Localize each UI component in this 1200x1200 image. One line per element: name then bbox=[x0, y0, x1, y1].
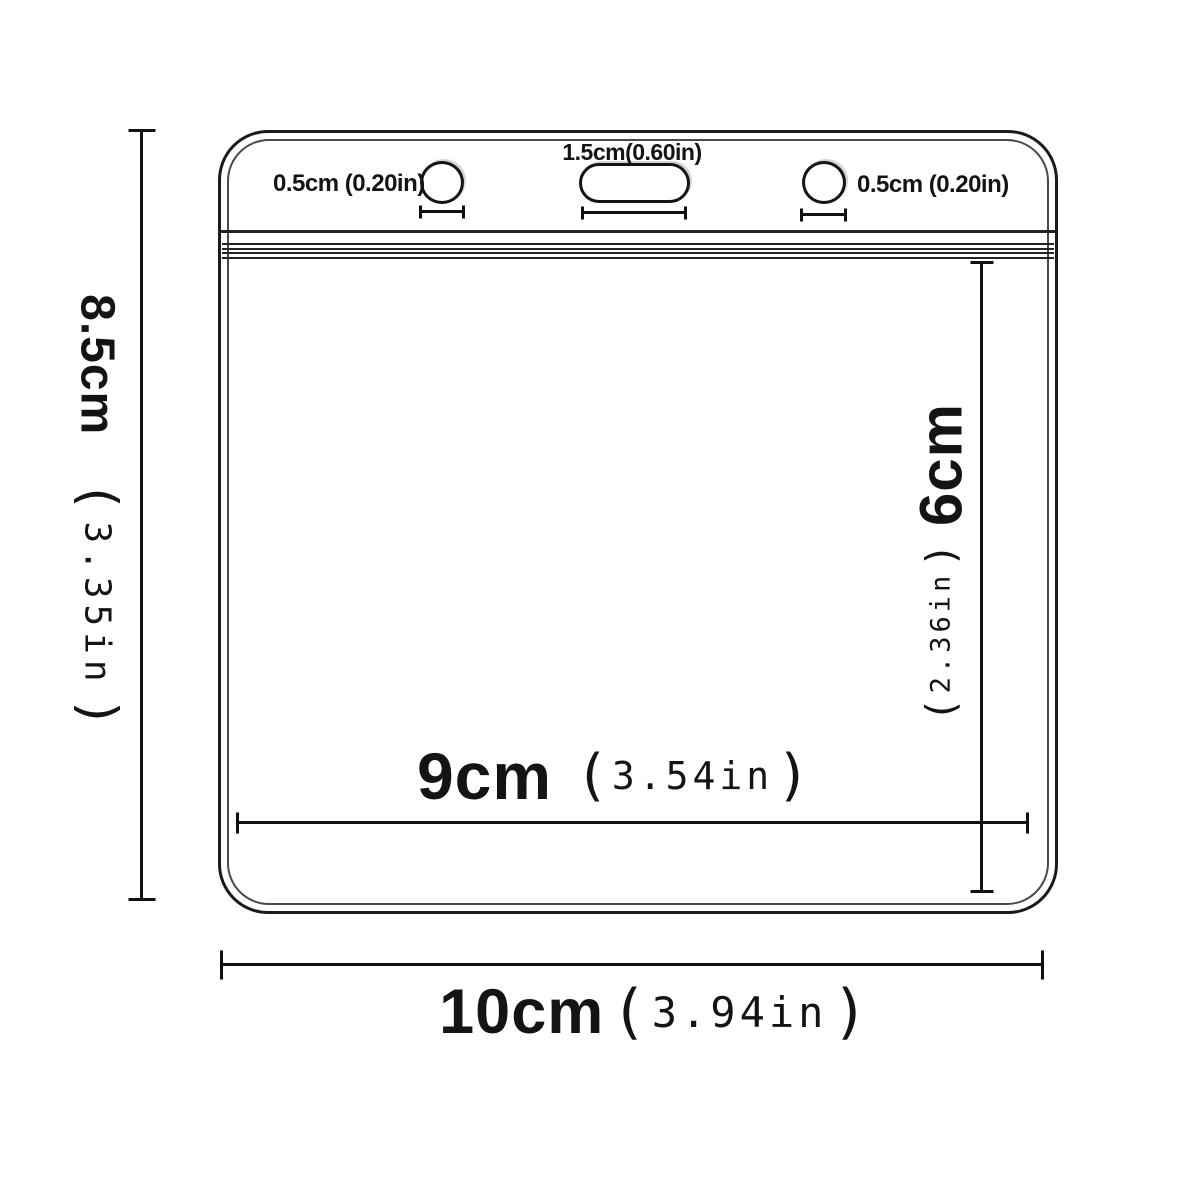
inner-width-inch-group: ( 3.54in ) bbox=[582, 752, 803, 800]
paren-open: ( bbox=[924, 701, 958, 717]
height-inch-group: ( 3.35in ) bbox=[75, 487, 119, 722]
paren-open: ( bbox=[618, 987, 641, 1038]
zipper-seal-lines bbox=[222, 243, 1054, 261]
paren-close: ) bbox=[837, 987, 860, 1038]
inner-height-cm-value: 6cm bbox=[907, 403, 976, 526]
paren-close: ) bbox=[75, 702, 119, 722]
inner-width-inch-value: 3.54in bbox=[612, 754, 773, 798]
lanyard-hole-right bbox=[802, 161, 846, 204]
header-divider-line bbox=[221, 230, 1055, 233]
height-dimension-label: 8.5cm ( 3.35in ) bbox=[70, 294, 125, 722]
inner-width-dimension-line bbox=[237, 821, 1028, 824]
inner-width-dimension-label: 9cm ( 3.54in ) bbox=[417, 738, 803, 814]
width-cm-value: 10cm bbox=[439, 976, 604, 1048]
height-dimension-line bbox=[140, 130, 143, 900]
lanyard-hole-left bbox=[420, 161, 464, 204]
lanyard-slot bbox=[579, 163, 690, 203]
paren-open: ( bbox=[75, 487, 119, 507]
hole-left-dimension-tick bbox=[420, 210, 464, 213]
paren-close: ) bbox=[781, 752, 803, 800]
height-cm-value: 8.5cm bbox=[70, 294, 125, 435]
width-inch-group: ( 3.94in ) bbox=[618, 987, 861, 1038]
hole-left-label: 0.5cm (0.20in) bbox=[273, 170, 425, 198]
width-dimension-line bbox=[221, 963, 1043, 966]
zipper-line bbox=[222, 257, 1054, 259]
inner-height-dimension-line bbox=[980, 262, 983, 892]
paren-close: ) bbox=[924, 548, 958, 564]
width-inch-value: 3.94in bbox=[652, 988, 828, 1037]
zipper-line bbox=[222, 243, 1054, 245]
hole-right-label: 0.5cm (0.20in) bbox=[857, 171, 1009, 199]
inner-height-inch-group: ( 2.36in ) bbox=[924, 548, 958, 717]
zipper-line bbox=[222, 248, 1054, 250]
height-inch-value: 3.35in bbox=[77, 522, 118, 688]
zipper-line bbox=[222, 252, 1054, 254]
inner-height-dimension-label: ( 2.36in ) 6cm bbox=[907, 403, 976, 717]
slot-dimension-tick bbox=[582, 211, 686, 214]
inner-height-inch-value: 2.36in bbox=[926, 572, 957, 694]
hole-right-dimension-tick bbox=[801, 213, 846, 216]
paren-open: ( bbox=[582, 752, 604, 800]
slot-label: 1.5cm(0.60in) bbox=[562, 139, 701, 166]
width-dimension-label: 10cm ( 3.94in ) bbox=[439, 976, 861, 1048]
inner-width-cm-value: 9cm bbox=[417, 738, 552, 814]
